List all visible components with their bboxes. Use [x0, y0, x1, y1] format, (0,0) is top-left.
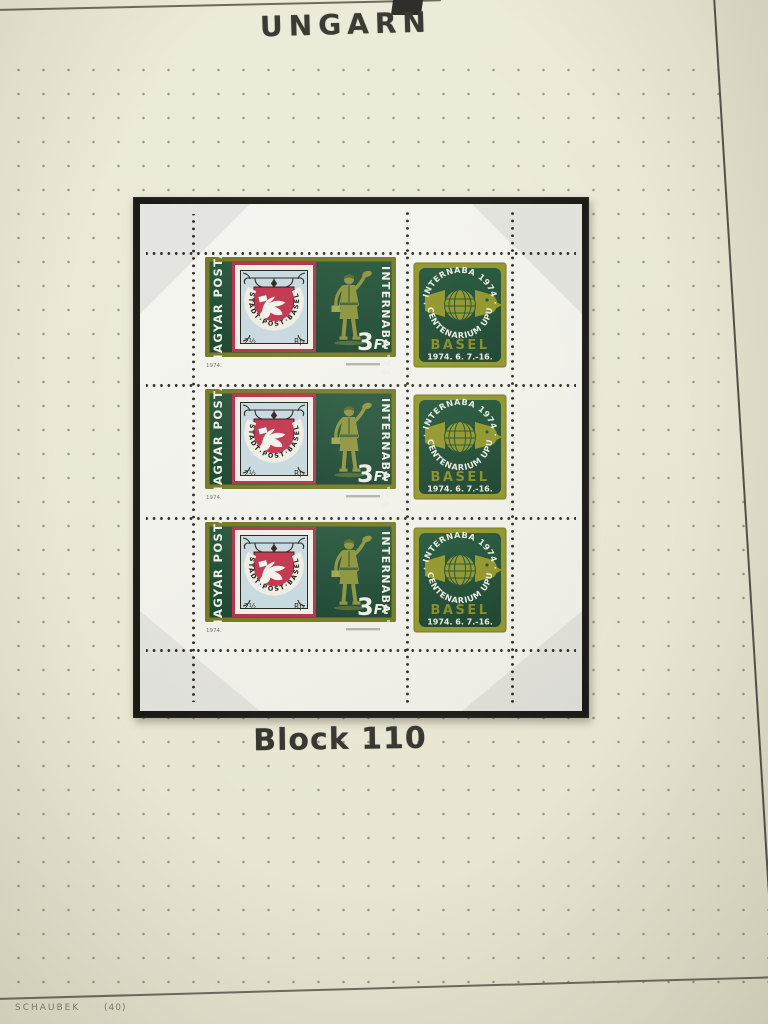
page-number-imprint: (40) [104, 1003, 126, 1013]
stamp-internaba-row1 [196, 255, 404, 382]
album-page-photo: MAGYAR POSTA [0, 0, 768, 1024]
stamp-internaba-row2 [196, 387, 404, 514]
stamp-internaba-row3 [196, 520, 404, 647]
stamp-mount [133, 197, 589, 718]
page-title: UNGARN [260, 6, 431, 44]
label-basel-row3 [410, 520, 510, 647]
block-caption: Block 110 [230, 720, 450, 758]
souvenir-sheet [140, 204, 582, 711]
label-basel-row1 [410, 255, 510, 382]
label-basel-row2 [410, 387, 510, 514]
perforation-column [510, 210, 515, 705]
publisher-imprint: SCHAUBEK [15, 1003, 80, 1013]
